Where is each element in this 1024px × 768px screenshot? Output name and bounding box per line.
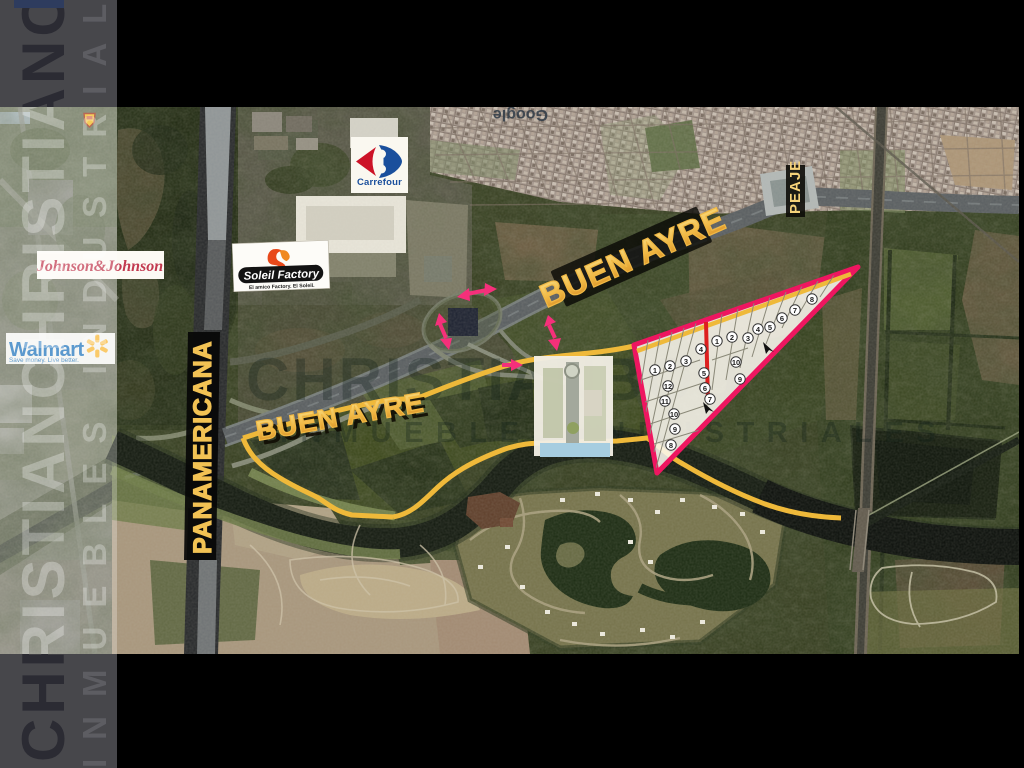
svg-text:8: 8 bbox=[669, 441, 673, 450]
svg-text:8: 8 bbox=[810, 295, 814, 304]
svg-text:6: 6 bbox=[780, 314, 784, 323]
svg-text:INMUEBLES INDUSTRIALES: INMUEBLES INDUSTRIALES bbox=[76, 0, 113, 768]
svg-text:5: 5 bbox=[702, 369, 706, 378]
svg-text:9: 9 bbox=[738, 375, 742, 384]
svg-text:1: 1 bbox=[715, 337, 719, 346]
svg-text:PANAMERICANA: PANAMERICANA bbox=[189, 341, 217, 554]
svg-text:PEAJE: PEAJE bbox=[787, 160, 804, 214]
svg-text:9: 9 bbox=[673, 425, 677, 434]
svg-text:5: 5 bbox=[768, 323, 772, 332]
svg-text:10: 10 bbox=[670, 410, 678, 419]
svg-text:1: 1 bbox=[653, 366, 657, 375]
svg-text:Carrefour: Carrefour bbox=[357, 177, 402, 188]
svg-text:10: 10 bbox=[732, 358, 740, 367]
svg-text:6: 6 bbox=[703, 384, 707, 393]
svg-text:7: 7 bbox=[708, 395, 712, 404]
svg-text:7: 7 bbox=[793, 306, 797, 315]
svg-text:2: 2 bbox=[668, 362, 672, 371]
svg-text:3: 3 bbox=[746, 334, 750, 343]
svg-text:11: 11 bbox=[661, 397, 669, 406]
svg-text:Google: Google bbox=[493, 106, 548, 123]
svg-text:12: 12 bbox=[664, 382, 672, 391]
svg-text:3: 3 bbox=[684, 357, 688, 366]
svg-text:2: 2 bbox=[730, 333, 734, 342]
svg-text:CHRISTIANCHRISTIANCH: CHRISTIANCHRISTIANCH bbox=[10, 0, 77, 762]
